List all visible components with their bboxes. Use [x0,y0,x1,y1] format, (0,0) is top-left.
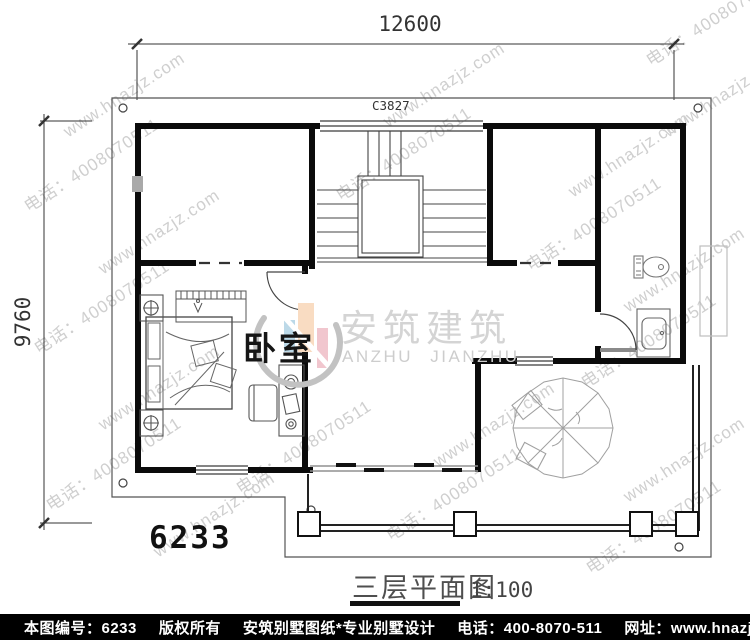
footer-phone: 电话：400-8070-511 [457,617,602,638]
bed [146,317,236,409]
footer-bar: 本图编号：6233 版权所有 安筑别墅图纸*专业别墅设计 电话：400-8070… [0,614,750,640]
toilet-icon [634,256,669,278]
logo-text-cn: 安筑建筑 [340,308,512,349]
dimension-top-value: 12600 [378,12,441,36]
dimension-top [128,39,684,100]
terrace-chairs [512,391,546,470]
drawing-sheet: www.hnazjz.com电话：4008070511www.hnazjz.co… [0,0,750,640]
window-code-label: C3827 [372,98,410,113]
footer-website: 网址：www.hnazjz.com [624,617,750,638]
logo-text-en: ANZHU JIANZHU [342,347,520,366]
footer-company: 安筑别墅图纸*专业别墅设计 [243,617,435,638]
dimension-left-value: 9760 [11,297,35,348]
desk-chair [249,385,277,421]
side-platform [700,246,727,336]
room-label-bedroom: 卧室 [243,330,315,367]
drawing-title-underline [350,601,460,606]
floor-plan-svg: 12600 9760 [0,0,750,640]
sliding-door [310,463,478,472]
footer-sheet-number: 本图编号：6233 [24,617,137,638]
staircase [317,131,487,262]
plan-number: 6233 [149,520,232,556]
bathroom-door [600,314,636,350]
drawing-scale: 1:100 [470,578,533,602]
dimension-left [39,114,92,530]
terrace-railing [308,365,699,531]
footer-copyright: 版权所有 [159,617,221,638]
sink-icon [637,309,670,357]
desk [279,365,304,436]
windows [196,121,553,474]
nightstand-bottom [140,410,163,436]
wall-patch [132,176,143,192]
